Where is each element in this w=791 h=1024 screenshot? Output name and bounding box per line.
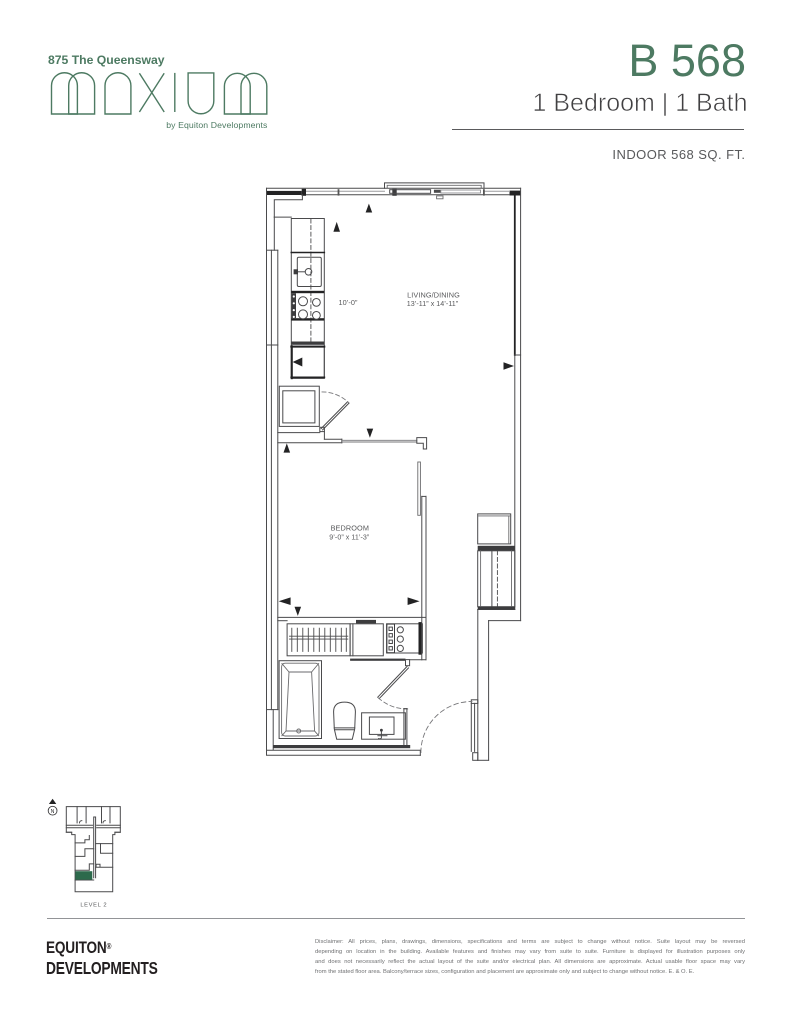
svg-text:N: N <box>51 809 55 815</box>
svg-text:9’-0” x 11’-3”: 9’-0” x 11’-3” <box>329 534 370 542</box>
svg-text:10’-0”: 10’-0” <box>339 298 358 307</box>
svg-text:LIVING/DINING: LIVING/DINING <box>407 291 460 300</box>
svg-text:LEVEL 2: LEVEL 2 <box>80 903 107 909</box>
svg-text:13’-11” x 14’-11”: 13’-11” x 14’-11” <box>407 300 459 308</box>
svg-text:BEDROOM: BEDROOM <box>331 523 369 532</box>
